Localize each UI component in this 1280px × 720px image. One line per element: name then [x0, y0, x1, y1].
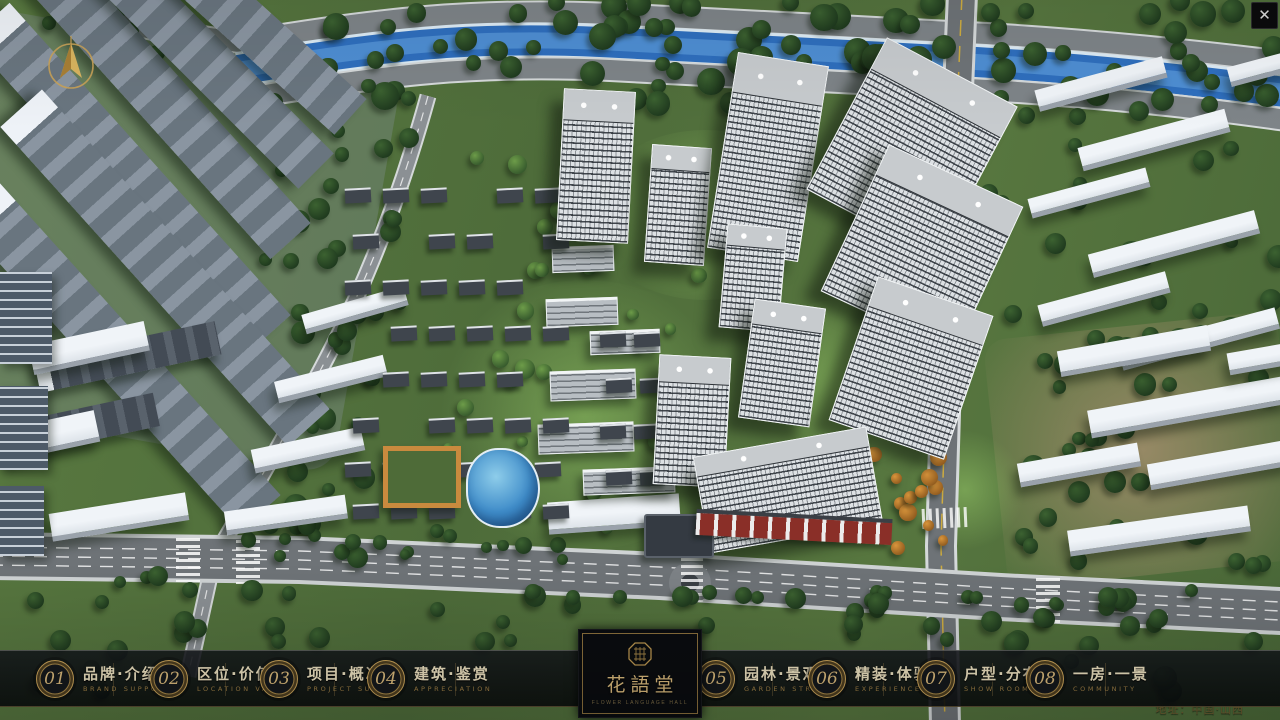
courtyard-roof: [429, 325, 456, 341]
courtyard-roof: [345, 461, 372, 477]
tree: [1131, 473, 1149, 491]
tree: [1204, 74, 1220, 90]
tree: [991, 58, 1016, 83]
tree: [868, 593, 889, 614]
tree: [535, 263, 548, 276]
residential-tower: [644, 144, 712, 266]
tree: [1072, 432, 1086, 446]
tree: [322, 483, 335, 496]
tree: [923, 520, 934, 531]
tree: [785, 588, 805, 608]
tree: [981, 611, 1002, 632]
tree: [367, 51, 385, 69]
compass-icon: [42, 36, 100, 94]
clubhouse-courtyard: [383, 446, 461, 508]
tree: [50, 630, 71, 651]
tree: [271, 634, 286, 649]
tree: [323, 178, 339, 194]
tree: [938, 535, 948, 545]
courtyard-roof: [459, 279, 486, 295]
tree: [1255, 84, 1279, 108]
nav-number-badge: 04: [367, 660, 405, 698]
context-highrise: [0, 486, 44, 556]
tree: [345, 534, 361, 550]
tree: [361, 79, 376, 94]
tree: [525, 584, 540, 599]
tree: [735, 587, 752, 604]
tree: [550, 537, 566, 553]
tree: [589, 23, 616, 50]
context-highrise: [0, 386, 48, 470]
tree: [553, 10, 578, 35]
tree: [399, 128, 419, 148]
tree: [283, 253, 299, 269]
tree: [627, 309, 638, 320]
tree: [317, 248, 338, 269]
tree: [702, 585, 717, 600]
tree: [1228, 553, 1245, 570]
nav-number-badge: 02: [150, 660, 188, 698]
tree: [1023, 42, 1047, 66]
tree: [1037, 353, 1053, 369]
tree: [481, 542, 492, 553]
courtyard-roof: [383, 187, 410, 203]
courtyard-roof: [421, 279, 448, 295]
tree: [509, 4, 528, 23]
tree: [1245, 557, 1262, 574]
tree: [241, 532, 257, 548]
courtyard-roof: [600, 331, 627, 347]
tree: [900, 15, 920, 35]
tree: [95, 595, 109, 609]
courtyard-roof: [497, 279, 524, 295]
courtyard-roof: [535, 461, 562, 477]
nav-number-badge: 08: [1026, 660, 1064, 698]
tree: [347, 547, 367, 567]
tree: [475, 632, 494, 651]
tree: [1068, 481, 1090, 503]
tree: [1223, 141, 1238, 156]
tree: [1014, 597, 1029, 612]
tree: [1193, 150, 1214, 171]
courtyard-roof: [345, 279, 372, 295]
nav-item-interior[interactable]: 06 精装·体验 EXPERIENCE: [808, 660, 931, 698]
courtyard-roof: [353, 233, 380, 249]
tree: [672, 586, 693, 607]
tree: [497, 540, 509, 552]
tree: [496, 615, 510, 629]
tree: [1190, 1, 1216, 27]
tree: [810, 4, 838, 32]
presentation-window: 地址：中国·山西 ✕ 01 品牌·介绍 BRAND SUPPORT 02 区位·…: [0, 0, 1280, 720]
courtyard-roof: [429, 417, 456, 433]
tree: [386, 44, 404, 62]
tree: [373, 535, 387, 549]
tree: [1134, 373, 1156, 395]
tree: [940, 632, 954, 646]
midrise-building: [552, 245, 615, 273]
seal-icon: [627, 641, 653, 667]
tree: [148, 566, 168, 586]
tree: [308, 198, 330, 220]
courtyard-roof: [345, 187, 372, 203]
tree: [466, 55, 482, 71]
tree: [274, 550, 285, 561]
tree: [664, 36, 682, 54]
nav-number-badge: 05: [697, 660, 735, 698]
tree: [1055, 45, 1070, 60]
courtyard-roof: [421, 187, 448, 203]
tree: [899, 504, 916, 521]
tree: [1104, 471, 1126, 493]
courtyard-roof: [429, 233, 456, 249]
tree: [400, 549, 411, 560]
tree: [655, 57, 670, 72]
courtyard-roof: [497, 187, 524, 203]
close-button[interactable]: ✕: [1251, 2, 1278, 29]
tree: [665, 323, 677, 335]
tree: [752, 20, 771, 39]
courtyard-roof: [634, 331, 661, 347]
courtyard-roof: [459, 371, 486, 387]
tree: [1182, 54, 1200, 72]
tree: [781, 35, 801, 55]
nav-title: 一房·一景: [1073, 665, 1149, 684]
nav-item-floorplan[interactable]: 07 户型·分布 SHOW ROOM: [917, 660, 1040, 698]
courtyard-roof: [505, 325, 532, 341]
tree: [645, 18, 663, 36]
tree: [500, 56, 522, 78]
tree: [1049, 597, 1062, 610]
context-highrise: [0, 272, 52, 364]
tree: [1053, 380, 1067, 394]
tree: [241, 580, 262, 601]
tree: [1151, 88, 1174, 111]
tree: [508, 155, 527, 174]
tree: [1129, 101, 1149, 121]
tree: [1162, 377, 1177, 392]
tree: [430, 602, 445, 617]
courtyard-roof: [497, 371, 524, 387]
tree: [309, 627, 330, 648]
courtyard-roof: [467, 325, 494, 341]
courtyard-roof: [383, 371, 410, 387]
midrise-building: [546, 297, 619, 327]
tree: [407, 3, 427, 23]
courtyard-roof: [543, 503, 570, 519]
swimming-pool: [466, 448, 540, 528]
tree: [455, 28, 477, 50]
courtyard-roof: [421, 371, 448, 387]
nav-number-badge: 07: [917, 660, 955, 698]
tree: [993, 42, 1010, 59]
tree: [932, 35, 956, 59]
nav-item-views[interactable]: 08 一房·一景 COMMUNITY: [1026, 660, 1149, 698]
nav-number-badge: 01: [36, 660, 74, 698]
tree: [457, 399, 474, 416]
nav-subtitle: APPRECIATION: [414, 685, 492, 693]
tree: [515, 537, 532, 554]
residential-tower: [556, 88, 636, 244]
courtyard-roof: [353, 503, 380, 519]
tree: [923, 617, 941, 635]
tree: [1120, 616, 1140, 636]
tree: [891, 473, 902, 484]
tree: [1139, 3, 1161, 25]
nav-number-badge: 03: [260, 660, 298, 698]
tree: [492, 350, 510, 368]
logo-title: 花語堂: [606, 670, 678, 697]
tree: [691, 268, 707, 284]
logo-subtitle: FLOWER LANGUAGE HALL: [592, 700, 688, 706]
tree: [323, 13, 350, 40]
tree: [504, 634, 517, 647]
courtyard-roof: [606, 469, 633, 485]
logo-panel[interactable]: 花語堂 FLOWER LANGUAGE HALL: [578, 629, 702, 718]
nav-subtitle: COMMUNITY: [1073, 685, 1149, 693]
nav-item-architecture[interactable]: 04 建筑·鉴赏 APPRECIATION: [367, 660, 492, 698]
courtyard-roof: [606, 377, 633, 393]
courtyard-roof: [383, 279, 410, 295]
tree: [174, 611, 196, 633]
courtyard-roof: [467, 233, 494, 249]
tree: [646, 91, 670, 115]
tree: [566, 590, 580, 604]
tree: [1039, 508, 1058, 527]
tree: [1069, 108, 1086, 125]
courtyard-roof: [467, 417, 494, 433]
nav-number-badge: 06: [808, 660, 846, 698]
tree: [1033, 608, 1052, 627]
courtyard-roof: [353, 417, 380, 433]
tree: [1023, 538, 1038, 553]
nav-title: 建筑·鉴赏: [414, 665, 492, 684]
courtyard-roof: [543, 417, 570, 433]
courtyard-roof: [543, 325, 570, 341]
courtyard-roof: [600, 423, 627, 439]
courtyard-roof: [505, 417, 532, 433]
courtyard-roof: [391, 325, 418, 341]
tree: [27, 592, 44, 609]
tree: [1045, 233, 1066, 254]
masterplan-3d-view[interactable]: 地址：中国·山西: [0, 0, 1280, 720]
tree: [517, 436, 528, 447]
tree: [380, 19, 396, 35]
tree: [990, 19, 1007, 36]
